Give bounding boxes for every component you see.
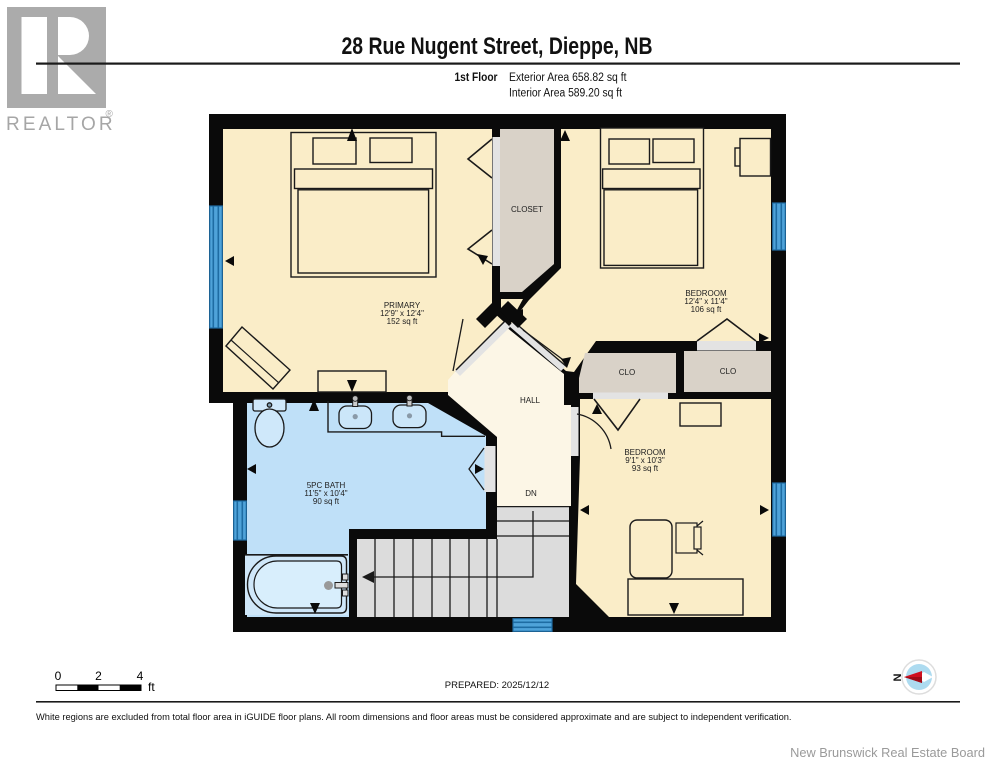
- svg-text:White regions are excluded fro: White regions are excluded from total fl…: [36, 712, 792, 722]
- svg-text:CLO: CLO: [720, 367, 736, 376]
- svg-text:2: 2: [95, 669, 102, 683]
- svg-text:Exterior Area 658.82 sq ft: Exterior Area 658.82 sq ft: [509, 72, 627, 84]
- svg-text:1st Floor: 1st Floor: [455, 72, 498, 84]
- svg-text:DN: DN: [525, 489, 537, 498]
- svg-text:HALL: HALL: [520, 396, 541, 405]
- svg-text:ft: ft: [148, 680, 155, 694]
- svg-text:N: N: [892, 673, 904, 681]
- svg-text:28 Rue Nugent Street, Dieppe,: 28 Rue Nugent Street, Dieppe, NB: [342, 33, 653, 60]
- svg-text:0: 0: [55, 669, 62, 683]
- svg-text:REALTOR: REALTOR: [6, 114, 116, 135]
- svg-text:106 sq ft: 106 sq ft: [691, 305, 722, 314]
- svg-text:PREPARED: 2025/12/12: PREPARED: 2025/12/12: [445, 680, 549, 691]
- svg-text:4: 4: [137, 669, 144, 683]
- svg-text:93 sq ft: 93 sq ft: [632, 464, 659, 473]
- svg-text:CLOSET: CLOSET: [511, 205, 543, 214]
- svg-text:®: ®: [106, 109, 114, 120]
- svg-text:CLO: CLO: [619, 368, 635, 377]
- svg-text:90 sq ft: 90 sq ft: [313, 497, 340, 506]
- svg-text:Interior Area 589.20 sq ft: Interior Area 589.20 sq ft: [509, 88, 623, 100]
- svg-text:152 sq ft: 152 sq ft: [387, 317, 418, 326]
- svg-text:New Brunswick Real Estate Boar: New Brunswick Real Estate Board: [790, 745, 985, 760]
